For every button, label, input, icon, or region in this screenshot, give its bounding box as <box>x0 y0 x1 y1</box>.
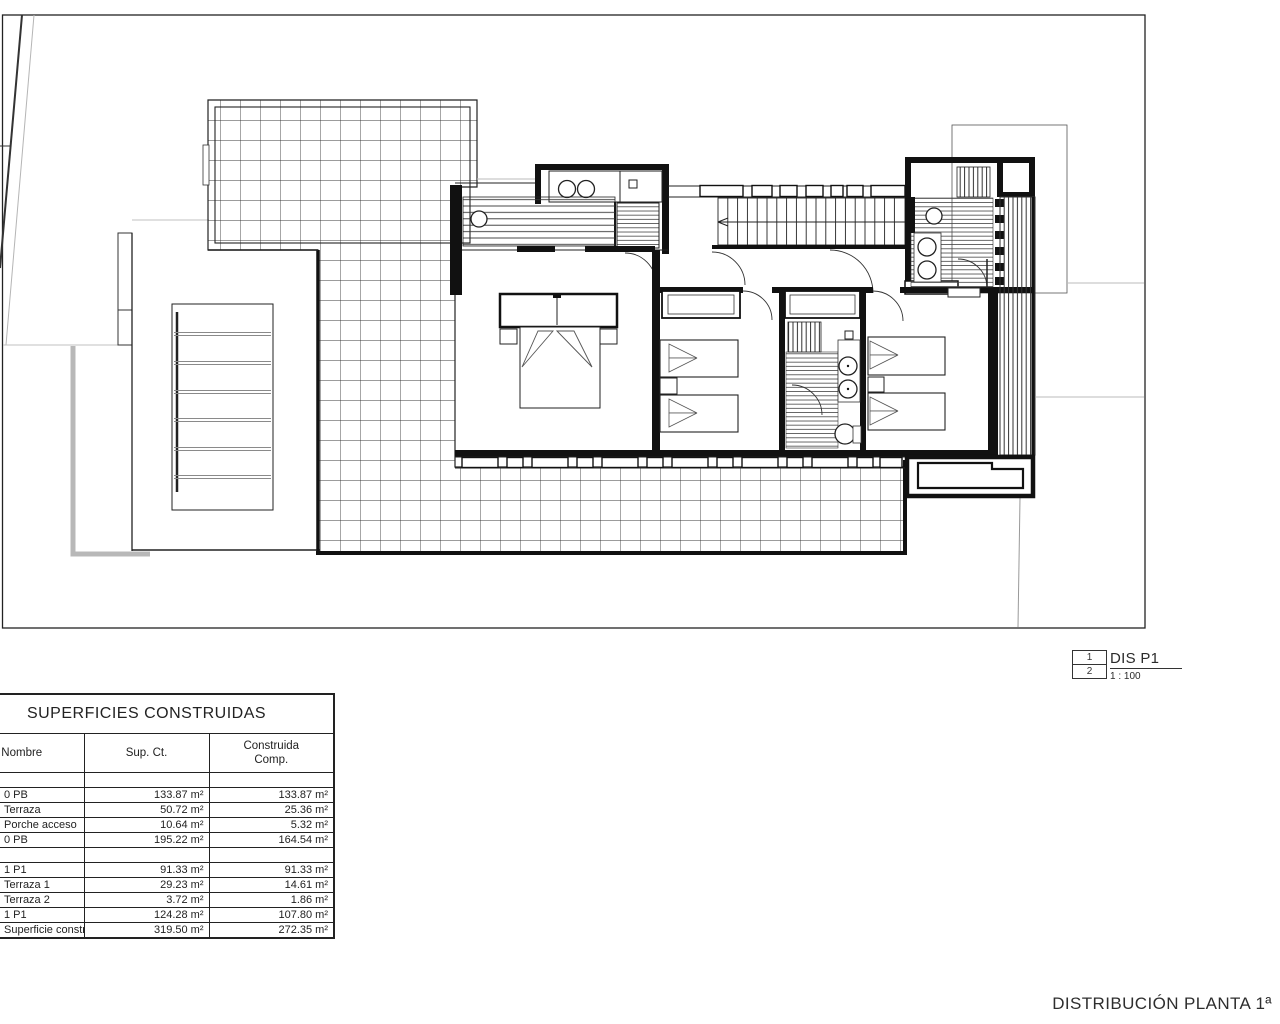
table-row: 1 P1124.28 m²107.80 m² <box>0 908 334 923</box>
bidet-icon <box>918 261 936 279</box>
nightstand <box>600 329 617 344</box>
table-cell: 133.87 m² <box>209 788 334 803</box>
table-cell: Terraza 1 <box>0 878 84 893</box>
table-cell: 0 PB <box>0 788 84 803</box>
shower-drain-icon <box>629 180 637 188</box>
bedroom-3 <box>868 281 958 430</box>
pergola-shelf <box>172 304 273 510</box>
nightstand <box>868 377 884 392</box>
center-bathroom <box>785 291 861 448</box>
table-row <box>0 848 334 863</box>
drawing-title: DISTRIBUCIÓN PLANTA 1ª <box>1052 994 1272 1014</box>
nightstand <box>660 378 677 394</box>
corridor-doors <box>712 250 873 293</box>
table-cell: 107.80 m² <box>209 908 334 923</box>
table-cell: 91.33 m² <box>84 863 209 878</box>
table-cell: Porche acceso <box>0 818 84 833</box>
window-band-bottom <box>455 457 905 468</box>
shower-drain-icon <box>845 331 853 339</box>
table-cell: 14.61 m² <box>209 878 334 893</box>
table-cell: 1 P1 <box>0 863 84 878</box>
drawing-scale: 1 : 100 <box>1110 669 1182 682</box>
door-swing-arc <box>743 291 772 320</box>
table-row <box>0 773 334 788</box>
bathroom-floor <box>786 352 838 448</box>
table-cell: 29.23 m² <box>84 878 209 893</box>
table-row: Terraza 129.23 m²14.61 m² <box>0 878 334 893</box>
surface-table-body: 0 PB133.87 m²133.87 m²Terraza50.72 m²25.… <box>0 773 334 939</box>
sink-icon <box>559 181 576 198</box>
sink-icon <box>471 211 487 227</box>
louver-band <box>1000 197 1035 455</box>
shower-glazing <box>957 167 990 197</box>
plan-sheet: 1 2 DIS P1 1 : 100 SUPERFICIES CONSTRUID… <box>0 0 1280 1024</box>
table-cell <box>84 848 209 863</box>
bedroom-2 <box>660 291 772 432</box>
road-lines <box>0 15 34 345</box>
toilet-icon <box>918 238 936 256</box>
table-cell: 319.50 m² <box>84 923 209 939</box>
table-row: 0 PB133.87 m²133.87 m² <box>0 788 334 803</box>
table-cell <box>0 773 84 788</box>
table-cell <box>209 773 334 788</box>
staircase <box>712 198 905 249</box>
table-row: 1 P191.33 m²91.33 m² <box>0 863 334 878</box>
threshold <box>948 288 980 297</box>
shower-floor <box>617 203 659 248</box>
window-band-top <box>668 186 905 198</box>
table-cell: 5.32 m² <box>209 818 334 833</box>
table-cell: 133.87 m² <box>84 788 209 803</box>
table-row: 0 PB195.22 m²164.54 m² <box>0 833 334 848</box>
master-bed <box>500 294 617 408</box>
table-cell: 1.86 m² <box>209 893 334 908</box>
table-cell <box>0 848 84 863</box>
table-cell: Superficie construida total <box>0 923 84 939</box>
table-cell: Terraza <box>0 803 84 818</box>
table-row: Porche acceso10.64 m²5.32 m² <box>0 818 334 833</box>
door-swing-arc <box>873 291 903 321</box>
table-cell: 272.35 m² <box>209 923 334 939</box>
table-row: Terraza50.72 m²25.36 m² <box>0 803 334 818</box>
reference-box: 1 2 <box>1072 650 1107 679</box>
table-row: Superficie construida total319.50 m²272.… <box>0 923 334 939</box>
table-cell: 0 PB <box>0 833 84 848</box>
nightstand <box>500 329 517 344</box>
table-cell: 50.72 m² <box>84 803 209 818</box>
table-cell <box>209 848 334 863</box>
table-cell: 124.28 m² <box>84 908 209 923</box>
master-suite-bathroom <box>450 164 669 295</box>
table-cell <box>84 773 209 788</box>
sink-icon <box>578 181 595 198</box>
column-header-nombre: Nombre <box>0 734 84 773</box>
floor-plan-drawing <box>0 0 1280 660</box>
surface-table: SUPERFICIES CONSTRUIDAS Nombre Sup. Ct. … <box>0 693 335 939</box>
shower-glazing <box>788 322 821 352</box>
reference-number-2: 2 <box>1073 665 1106 678</box>
reference-number-1: 1 <box>1073 651 1106 665</box>
surface-table-title: SUPERFICIES CONSTRUIDAS <box>0 694 334 734</box>
table-cell: 10.64 m² <box>84 818 209 833</box>
toilet-icon <box>835 424 855 444</box>
table-cell: 164.54 m² <box>209 833 334 848</box>
door-swing-arc <box>625 253 656 284</box>
column-header-sup-ct: Sup. Ct. <box>84 734 209 773</box>
column-header-construida-comp: Construida Comp. <box>209 734 334 773</box>
table-cell: Terraza 2 <box>0 893 84 908</box>
table-cell: 91.33 m² <box>209 863 334 878</box>
table-cell: 1 P1 <box>0 908 84 923</box>
sheet-reference: 1 2 DIS P1 1 : 100 <box>1072 650 1182 682</box>
table-cell: 195.22 m² <box>84 833 209 848</box>
drawing-code: DIS P1 <box>1110 650 1182 669</box>
surface-table-header: Nombre Sup. Ct. Construida Comp. <box>0 734 334 773</box>
table-cell: 3.72 m² <box>84 893 209 908</box>
terrace-notch <box>203 145 209 185</box>
terrace-piece <box>907 457 1033 496</box>
table-row: Terraza 23.72 m²1.86 m² <box>0 893 334 908</box>
sink-icon <box>926 208 942 224</box>
table-cell: 25.36 m² <box>209 803 334 818</box>
